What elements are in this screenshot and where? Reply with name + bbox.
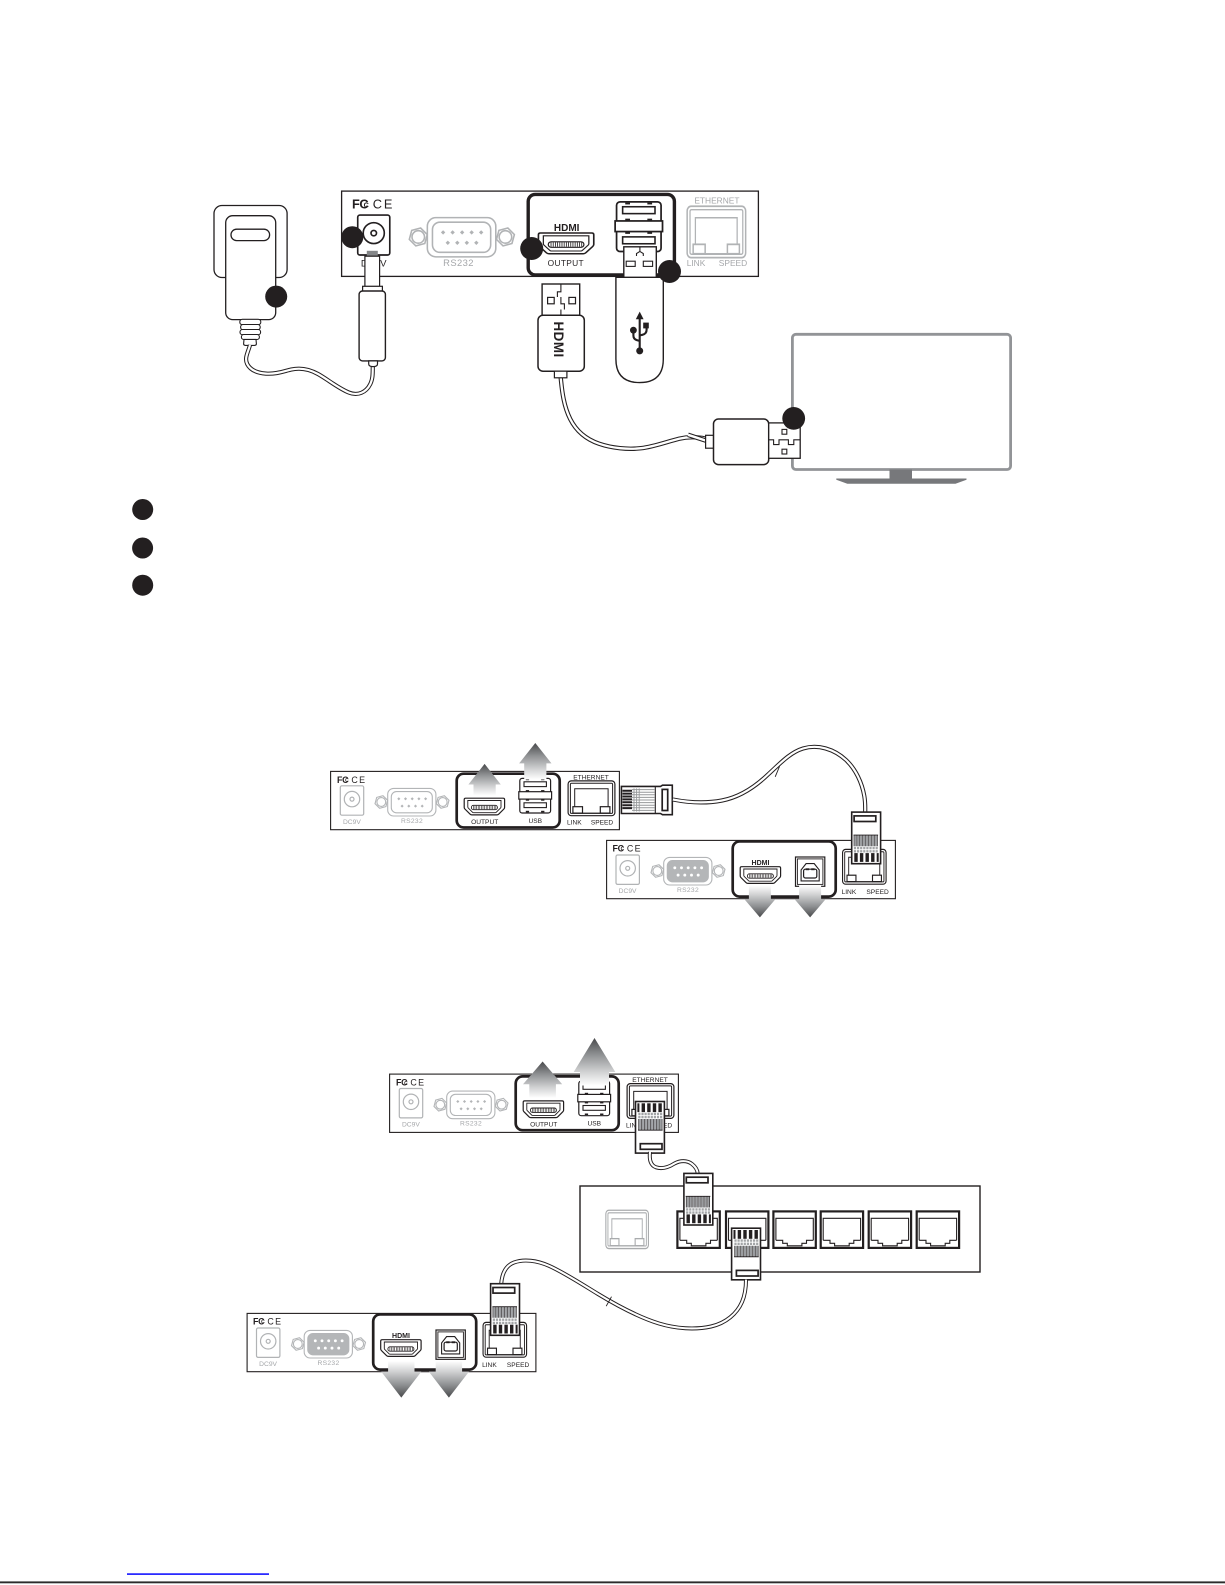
svg-text:ETHERNET: ETHERNET (632, 1077, 668, 1084)
svg-text:HDMI: HDMI (752, 860, 770, 867)
svg-text:SPEED: SPEED (719, 258, 747, 268)
svg-text:USB: USB (529, 818, 543, 825)
svg-text:HDMI: HDMI (551, 322, 566, 358)
svg-text:ETHERNET: ETHERNET (694, 196, 739, 206)
svg-text:RS232: RS232 (318, 1360, 340, 1367)
svg-text:LINK: LINK (482, 1362, 497, 1369)
svg-text:DC9V: DC9V (259, 1361, 277, 1368)
svg-text:OUTPUT: OUTPUT (548, 258, 584, 268)
svg-text:SPEED: SPEED (866, 889, 889, 896)
svg-text:DC9V: DC9V (402, 1122, 420, 1129)
svg-text:SPEED: SPEED (507, 1362, 530, 1369)
svg-text:LINK: LINK (567, 820, 582, 827)
svg-text:DC9V: DC9V (343, 819, 361, 826)
svg-text:DC9V: DC9V (619, 888, 637, 895)
svg-text:USB: USB (588, 1121, 602, 1128)
svg-text:RS232: RS232 (677, 887, 699, 894)
svg-text:RS232: RS232 (401, 818, 423, 825)
svg-text:LINK: LINK (842, 889, 857, 896)
svg-text:OUTPUT: OUTPUT (530, 1122, 557, 1129)
svg-text:RS232: RS232 (460, 1121, 482, 1128)
svg-text:OUTPUT: OUTPUT (471, 819, 498, 826)
svg-text:LINK: LINK (687, 258, 706, 268)
svg-text:SPEED: SPEED (591, 820, 614, 827)
svg-text:HDMI: HDMI (392, 1333, 410, 1340)
svg-text:RS232: RS232 (443, 257, 474, 268)
svg-text:ETHERNET: ETHERNET (573, 775, 609, 782)
